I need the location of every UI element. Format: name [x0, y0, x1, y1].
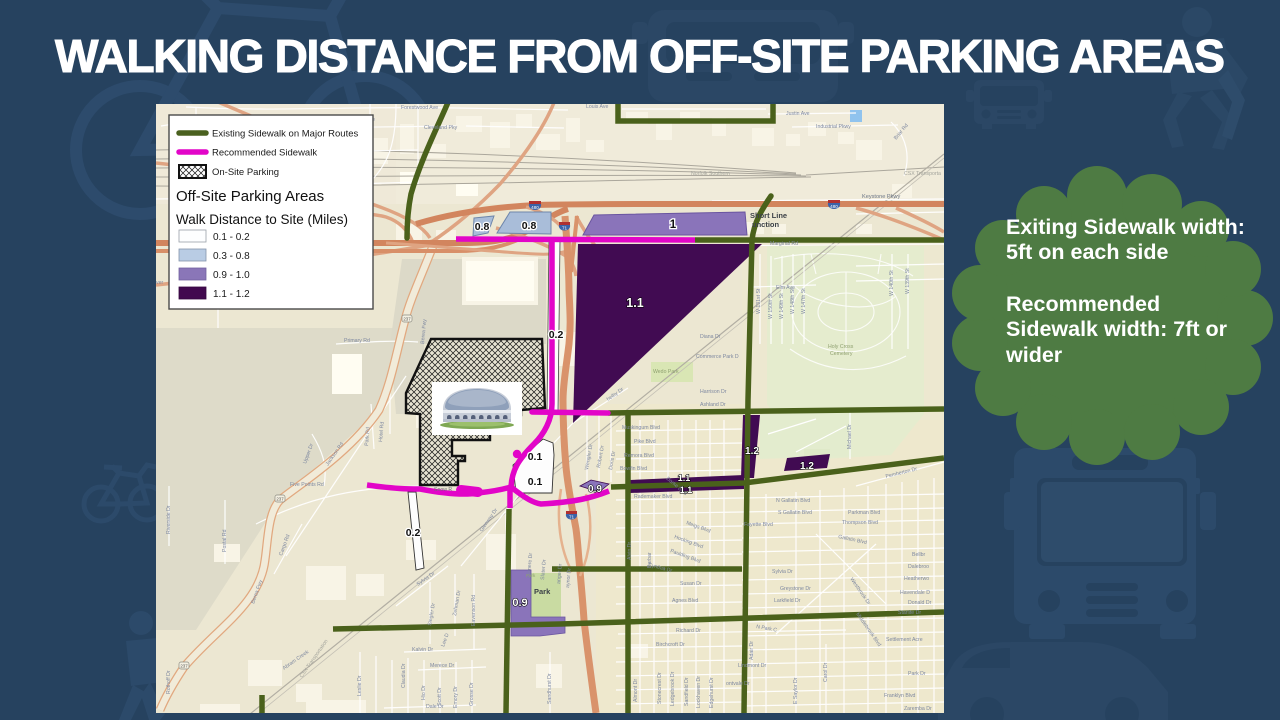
svg-text:71: 71: [562, 226, 568, 231]
svg-text:W 147th St: W 147th St: [801, 288, 807, 314]
svg-text:1: 1: [670, 219, 677, 231]
svg-text:Almont Dr: Almont Dr: [633, 679, 639, 702]
svg-text:Greystone Dr: Greystone Dr: [780, 586, 811, 592]
svg-text:W 150th St: W 150th St: [768, 293, 774, 319]
svg-text:Wedo Park: Wedo Park: [653, 369, 679, 375]
svg-text:Carol Dr: Carol Dr: [823, 662, 829, 682]
svg-text:Michael Dr: Michael Dr: [847, 424, 853, 449]
svg-text:Agnes Blvd: Agnes Blvd: [672, 598, 698, 604]
svg-text:Larkfield Dr: Larkfield Dr: [774, 598, 801, 604]
svg-text:Louis Ave: Louis Ave: [586, 104, 609, 110]
svg-text:Forestwood Ave: Forestwood Ave: [401, 105, 438, 111]
svg-text:Franklyn Blvd: Franklyn Blvd: [884, 693, 916, 699]
svg-text:Off-Site Parking Areas: Off-Site Parking Areas: [176, 188, 324, 205]
svg-text:Industrial Pkwy: Industrial Pkwy: [816, 124, 851, 130]
svg-text:Richard Dr: Richard Dr: [676, 628, 701, 634]
svg-text:Starlite Dr: Starlite Dr: [898, 610, 921, 616]
svg-text:0.1: 0.1: [528, 476, 543, 488]
svg-text:S Gallatin Blvd: S Gallatin Blvd: [778, 510, 812, 516]
svg-text:Rothoff Dr: Rothoff Dr: [166, 670, 172, 694]
svg-text:W 131st St: W 131st St: [756, 288, 762, 314]
svg-text:0.1: 0.1: [528, 451, 543, 463]
svg-text:Lockhaven Dr: Lockhaven Dr: [696, 676, 702, 708]
svg-text:Settlement Acre: Settlement Acre: [886, 637, 923, 643]
svg-text:Grosse Dr: Grosse Dr: [469, 682, 475, 706]
svg-text:W 140th St: W 140th St: [889, 270, 895, 296]
svg-text:Hio Dr: Hio Dr: [421, 685, 427, 700]
svg-text:N Gallatin Blvd: N Gallatin Blvd: [776, 498, 810, 504]
svg-text:Heatherwo: Heatherwo: [904, 576, 929, 582]
svg-text:237: 237: [180, 663, 188, 668]
svg-text:0.8: 0.8: [475, 221, 490, 233]
svg-text:Barbar: Barbar: [647, 552, 653, 568]
svg-text:480: 480: [830, 204, 838, 209]
svg-text:On-Site Parking: On-Site Parking: [212, 167, 279, 178]
svg-text:Leslie Dr: Leslie Dr: [357, 675, 363, 696]
svg-text:Bowfin Blvd: Bowfin Blvd: [620, 466, 647, 472]
svg-text:Havendale D: Havendale D: [900, 590, 930, 596]
svg-text:480: 480: [531, 205, 539, 210]
svg-text:Marginal Rd: Marginal Rd: [770, 241, 798, 247]
svg-text:0.9: 0.9: [512, 597, 527, 609]
svg-text:Parkman Blvd: Parkman Blvd: [848, 510, 880, 516]
svg-text:Lindmont Dr: Lindmont Dr: [738, 663, 767, 669]
svg-text:237: 237: [276, 496, 284, 501]
svg-text:Kalvin Dr: Kalvin Dr: [412, 647, 433, 653]
svg-text:Stonecrest Dr: Stonecrest Dr: [657, 672, 663, 704]
svg-text:Park: Park: [526, 573, 536, 578]
svg-text:unction: unction: [752, 220, 779, 229]
svg-text:0.1 - 0.2: 0.1 - 0.2: [213, 232, 250, 243]
svg-text:Norfolk Southern: Norfolk Southern: [691, 171, 730, 177]
svg-text:1.2: 1.2: [745, 446, 759, 457]
svg-text:Sandfield Dr: Sandfield Dr: [684, 677, 690, 706]
svg-text:Rademaker Blvd: Rademaker Blvd: [634, 494, 672, 500]
svg-text:Riverside Dr: Riverside Dr: [166, 505, 172, 534]
svg-text:W 148th St: W 148th St: [790, 288, 796, 314]
svg-text:Emory Dr: Emory Dr: [453, 686, 459, 708]
svg-text:Short Line: Short Line: [750, 211, 787, 220]
svg-text:Postal Rd: Postal Rd: [222, 529, 228, 552]
svg-text:Thompson Blvd: Thompson Blvd: [842, 520, 878, 526]
svg-text:Commerce Park D: Commerce Park D: [696, 354, 739, 360]
svg-text:1.1: 1.1: [678, 473, 691, 483]
svg-text:Alvin Dr: Alvin Dr: [627, 542, 633, 560]
svg-text:Merece Dr: Merece Dr: [430, 663, 454, 669]
svg-text:Remora Blvd: Remora Blvd: [624, 453, 654, 459]
svg-text:0.2: 0.2: [549, 329, 564, 341]
svg-text:Existing Sidewalk on Major Rou: Existing Sidewalk on Major Routes: [212, 129, 359, 140]
svg-text:E Saylor Dr: E Saylor Dr: [793, 677, 799, 704]
svg-text:Park: Park: [534, 587, 551, 596]
svg-text:237: 237: [403, 316, 411, 321]
svg-text:Five Points Rd: Five Points Rd: [290, 482, 324, 488]
svg-text:Pike Blvd: Pike Blvd: [634, 439, 656, 445]
svg-text:Primary Rd: Primary Rd: [344, 338, 370, 344]
svg-text:0.9 - 1.0: 0.9 - 1.0: [213, 270, 250, 281]
svg-text:Dalebroo: Dalebroo: [908, 564, 929, 570]
svg-text:ontvale Dr: ontvale Dr: [726, 681, 750, 687]
svg-text:Park Dr: Park Dr: [908, 671, 926, 677]
svg-text:71: 71: [569, 515, 575, 520]
svg-text:0.3 - 0.8: 0.3 - 0.8: [213, 251, 250, 262]
svg-text:Justin Ave: Justin Ave: [786, 111, 810, 117]
svg-text:Scott Dr: Scott Dr: [437, 687, 443, 706]
svg-text:CSX Transporta: CSX Transporta: [904, 171, 941, 177]
svg-text:Sandhurst Dr: Sandhurst Dr: [547, 673, 553, 704]
svg-text:Claudia Dr: Claudia Dr: [401, 663, 407, 688]
svg-text:W 149th St: W 149th St: [779, 293, 785, 319]
svg-text:Walk Distance to Site (Miles): Walk Distance to Site (Miles): [176, 212, 348, 227]
svg-text:Ledgebrook Dr: Ledgebrook Dr: [670, 671, 676, 706]
svg-text:Eavenson Rd: Eavenson Rd: [471, 595, 477, 626]
svg-text:Zaremba Dr: Zaremba Dr: [904, 706, 932, 712]
svg-text:1.1: 1.1: [626, 296, 643, 310]
svg-text:W 139th St: W 139th St: [905, 268, 911, 294]
svg-text:Cleveland Pky: Cleveland Pky: [424, 125, 458, 131]
svg-text:1.1: 1.1: [680, 485, 693, 495]
svg-text:Edgehurst Dr: Edgehurst Dr: [709, 677, 715, 708]
svg-text:Birchcroft Dr: Birchcroft Dr: [656, 642, 685, 648]
svg-text:Holy Cross: Holy Cross: [828, 344, 854, 350]
svg-text:Keystone Pkwy: Keystone Pkwy: [862, 194, 900, 200]
svg-text:1.2: 1.2: [800, 461, 814, 472]
svg-text:Donald Dr: Donald Dr: [908, 600, 932, 606]
svg-text:Recommended Sidewalk: Recommended Sidewalk: [212, 148, 317, 159]
svg-text:0.8: 0.8: [522, 220, 537, 232]
svg-text:1.1 - 1.2: 1.1 - 1.2: [213, 289, 250, 300]
svg-text:Snow R: Snow R: [434, 487, 452, 493]
svg-text:Cemetery: Cemetery: [830, 351, 853, 357]
svg-text:Muskingum Blvd: Muskingum Blvd: [622, 425, 660, 431]
svg-text:Harrison Dr: Harrison Dr: [700, 389, 727, 395]
svg-text:0.2: 0.2: [406, 527, 421, 539]
svg-text:Ashland Dr: Ashland Dr: [700, 402, 726, 408]
svg-text:Fayette Blvd: Fayette Blvd: [744, 522, 773, 528]
svg-text:Sylvia Dr: Sylvia Dr: [772, 569, 793, 575]
svg-text:Adair Dr: Adair Dr: [749, 641, 755, 660]
svg-text:Susan Dr: Susan Dr: [680, 581, 702, 587]
svg-text:Diana Dr: Diana Dr: [700, 334, 721, 340]
svg-text:Bellbr: Bellbr: [912, 552, 926, 558]
svg-text:ver: ver: [156, 280, 163, 286]
svg-text:0.9: 0.9: [588, 484, 602, 495]
